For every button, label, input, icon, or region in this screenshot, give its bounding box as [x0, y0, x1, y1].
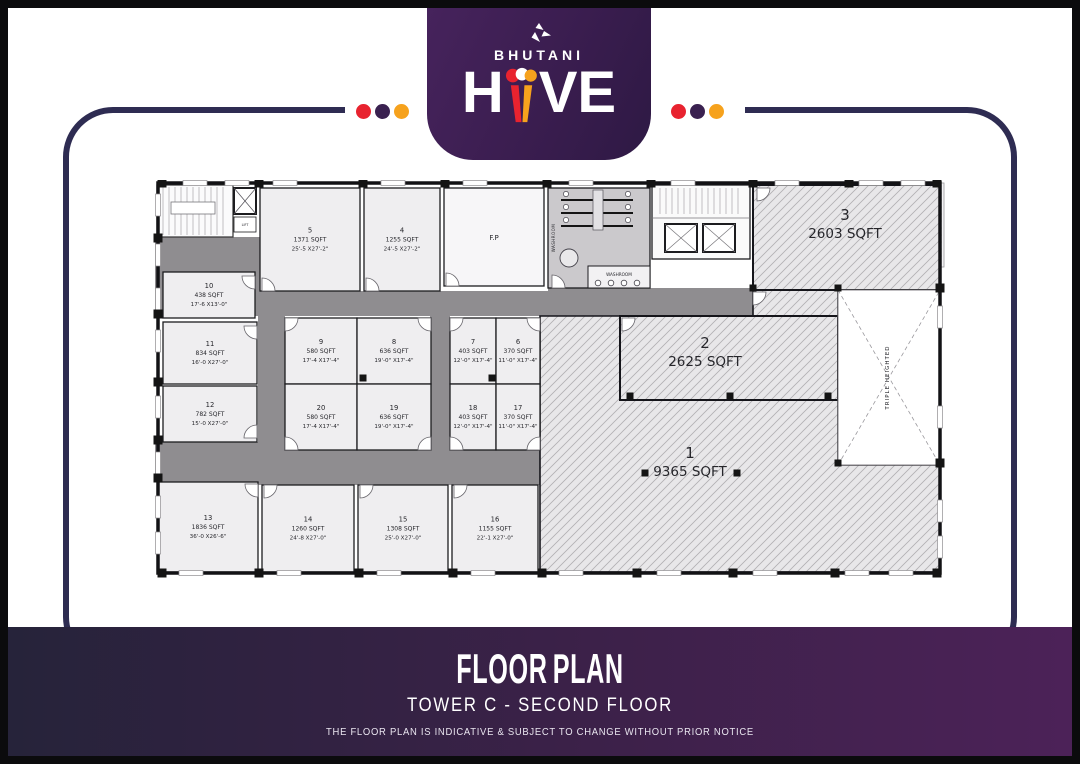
column	[933, 569, 942, 578]
plan-label: 13	[204, 514, 213, 522]
plan-label: 10	[205, 282, 214, 290]
column	[627, 393, 634, 400]
plan-label: 17'-6 X13'-0"	[191, 302, 228, 308]
unit-9: 9580 SQFT17'-4 X17'-4"	[285, 318, 357, 384]
plan-label: 15'-0 X27'-0"	[192, 421, 229, 427]
column	[441, 180, 450, 188]
plan-label: 12'-0" X17'-4"	[453, 424, 493, 430]
column	[154, 436, 163, 445]
plan-label: 636 SQFT	[380, 348, 409, 355]
column	[360, 375, 367, 382]
column	[154, 310, 163, 319]
column	[642, 470, 649, 477]
plan-label: 11'-0" X17'-4"	[498, 358, 538, 364]
poster-canvas: BHUTANI H VE 19365 SQFT22625 SQFT32603 S…	[8, 8, 1072, 756]
column	[825, 393, 832, 400]
plan-label: 16	[491, 516, 500, 524]
footer-subtitle: TOWER C - SECOND FLOOR	[72, 695, 1008, 717]
unit-3: 32603 SQFT	[753, 185, 940, 290]
decorative-dot	[394, 104, 409, 119]
column	[154, 234, 163, 243]
column	[538, 569, 547, 578]
plan-label: 403 SQFT	[459, 414, 488, 421]
plan-label: 1371 SQFT	[294, 237, 327, 244]
plan-label: 1836 SQFT	[192, 524, 225, 531]
footer-band: FLOOR PLAN TOWER C - SECOND FLOOR THE FL…	[8, 627, 1072, 756]
plan-label: 834 SQFT	[196, 350, 225, 357]
decorative-dot	[375, 104, 390, 119]
column	[489, 375, 496, 382]
plan-label: 1255 SQFT	[386, 237, 419, 244]
column	[158, 569, 167, 578]
corridor	[258, 448, 540, 485]
staircase-top-left	[157, 185, 233, 237]
column	[154, 378, 163, 387]
plan-label: 11	[206, 340, 215, 348]
decorative-dot	[709, 104, 724, 119]
poster-frame: BHUTANI H VE 19365 SQFT22625 SQFT32603 S…	[0, 0, 1080, 764]
corridor	[548, 288, 753, 316]
plan-label: 2603 SQFT	[808, 226, 882, 242]
corridor	[430, 316, 450, 448]
column	[936, 284, 945, 293]
plan-label: 2625 SQFT	[668, 354, 742, 370]
column	[933, 180, 942, 188]
unit-15: 151308 SQFT25'-0 X27'-0"	[358, 485, 448, 572]
plan-label: 36'-0 X26'-6"	[190, 534, 227, 540]
unit-14: 141260 SQFT24'-8 X27'-0"	[262, 485, 354, 572]
plan-label: 636 SQFT	[380, 414, 409, 421]
decorative-dot	[356, 104, 371, 119]
unit-16: 161155 SQFT22'-1 X27'-0"	[452, 485, 538, 572]
plan-label: 5	[308, 227, 312, 235]
decorative-dot	[690, 104, 705, 119]
plan-label: 12	[206, 401, 215, 409]
plan-label: 9	[319, 338, 323, 346]
column	[359, 180, 368, 188]
plan-label: 17'-4 X17'-4"	[303, 358, 340, 364]
plan-label: 17'-4 X17'-4"	[303, 424, 340, 430]
plan-label: 6	[516, 338, 520, 346]
unit-8: 8636 SQFT19'-0" X17'-4"	[357, 318, 431, 384]
plan-label: 403 SQFT	[459, 348, 488, 355]
plan-label: 18	[469, 404, 478, 412]
column	[355, 569, 364, 578]
plan-label: 22'-1 X27'-0"	[477, 536, 514, 542]
column	[750, 285, 757, 292]
unit-20: 20580 SQFT17'-4 X17'-4"	[285, 384, 357, 450]
column	[255, 180, 264, 188]
plan-label: 24'-8 X27'-0"	[290, 536, 327, 542]
unit-5: 51371 SQFT25'-5 X27'-2"	[260, 188, 360, 291]
plan-label: 580 SQFT	[307, 414, 336, 421]
corridor	[155, 442, 260, 482]
plan-label: 25'-5 X27'-2"	[292, 247, 329, 253]
plan-label: 4	[400, 227, 404, 235]
hive-letter-h: H	[462, 64, 504, 122]
unit-13: 131836 SQFT36'-0 X26'-6"	[158, 482, 258, 572]
plan-label: LIFT	[242, 223, 250, 227]
plan-label: 16'-0 X27'-0"	[192, 360, 229, 366]
plan-label: 20	[317, 404, 326, 412]
decorative-dot	[671, 104, 686, 119]
column	[729, 569, 738, 578]
unit-11: 11834 SQFT16'-0 X27'-0"	[163, 322, 257, 384]
triple-height-void: TRIPLE HEIGHTED	[838, 290, 940, 465]
hive-logotype: H VE	[462, 64, 616, 123]
footer-title: FLOOR PLAN	[221, 645, 859, 693]
plan-label: 8	[392, 338, 396, 346]
unit-12: 12782 SQFT15'-0 X27'-0"	[163, 386, 257, 442]
plan-label: F.P	[489, 234, 498, 242]
column	[543, 180, 552, 188]
washroom-block: WASHROOMWASHROOM	[548, 188, 650, 288]
column	[449, 569, 458, 578]
column	[255, 569, 264, 578]
column	[727, 393, 734, 400]
staircase-core	[652, 185, 750, 259]
plan-label: WASHROOM	[551, 224, 556, 253]
plan-label: 15	[399, 516, 408, 524]
plan-label: 580 SQFT	[307, 348, 336, 355]
plan-label: 782 SQFT	[196, 411, 225, 418]
plan-label: 9365 SQFT	[653, 464, 727, 480]
decorative-dots-right	[671, 104, 724, 119]
column	[845, 180, 854, 188]
column	[835, 285, 842, 292]
plan-label: 19'-0" X17'-4"	[374, 358, 414, 364]
column	[158, 180, 167, 188]
bhutani-mark-icon	[526, 22, 552, 44]
unit-2: 22625 SQFT	[620, 316, 838, 400]
column	[154, 474, 163, 483]
footer-disclaimer: THE FLOOR PLAN IS INDICATIVE & SUBJECT T…	[61, 726, 1019, 738]
plan-label: 438 SQFT	[195, 292, 224, 299]
plan-label: 25'-0 X27'-0"	[385, 536, 422, 542]
fp-room: F.P	[444, 188, 544, 286]
plan-label: 3	[840, 206, 850, 224]
plan-label: 2	[700, 334, 710, 352]
column	[647, 180, 656, 188]
floor-plan: 19365 SQFT22625 SQFT32603 SQFTTRIPLE HEI…	[145, 180, 955, 580]
column	[831, 569, 840, 578]
corridor	[258, 291, 550, 316]
hive-letters-ve: VE	[539, 64, 616, 122]
plan-label: WASHROOM	[606, 272, 632, 277]
plan-label: 19	[390, 404, 399, 412]
plan-label: 370 SQFT	[504, 414, 533, 421]
plan-label: 1155 SQFT	[479, 526, 512, 533]
plan-label: 370 SQFT	[504, 348, 533, 355]
plan-label: 1260 SQFT	[292, 526, 325, 533]
unit-19: 19636 SQFT19'-0" X17'-4"	[357, 384, 431, 450]
decorative-dots-left	[356, 104, 409, 119]
plan-label: 17	[514, 404, 523, 412]
plan-label: 1308 SQFT	[387, 526, 420, 533]
unit-10: 10438 SQFT17'-6 X13'-0"	[163, 272, 255, 318]
column	[936, 459, 945, 468]
plan-label: 1	[685, 444, 695, 462]
plan-label: 14	[304, 516, 313, 524]
plan-label: 19'-0" X17'-4"	[374, 424, 414, 430]
plan-label: 24'-5 X27'-2"	[384, 247, 421, 253]
lift-shaft: LIFT	[234, 188, 256, 232]
unit-4: 41255 SQFT24'-5 X27'-2"	[364, 188, 440, 291]
column	[633, 569, 642, 578]
column	[734, 470, 741, 477]
column	[835, 460, 842, 467]
plan-label: 7	[471, 338, 475, 346]
plan-label: 12'-0" X17'-4"	[453, 358, 493, 364]
plan-label: TRIPLE HEIGHTED	[885, 345, 891, 410]
column	[749, 180, 758, 188]
plan-label: 11'-0" X17'-4"	[498, 424, 538, 430]
hive-ii-icon	[505, 67, 538, 123]
brand-badge: BHUTANI H VE	[427, 8, 651, 160]
